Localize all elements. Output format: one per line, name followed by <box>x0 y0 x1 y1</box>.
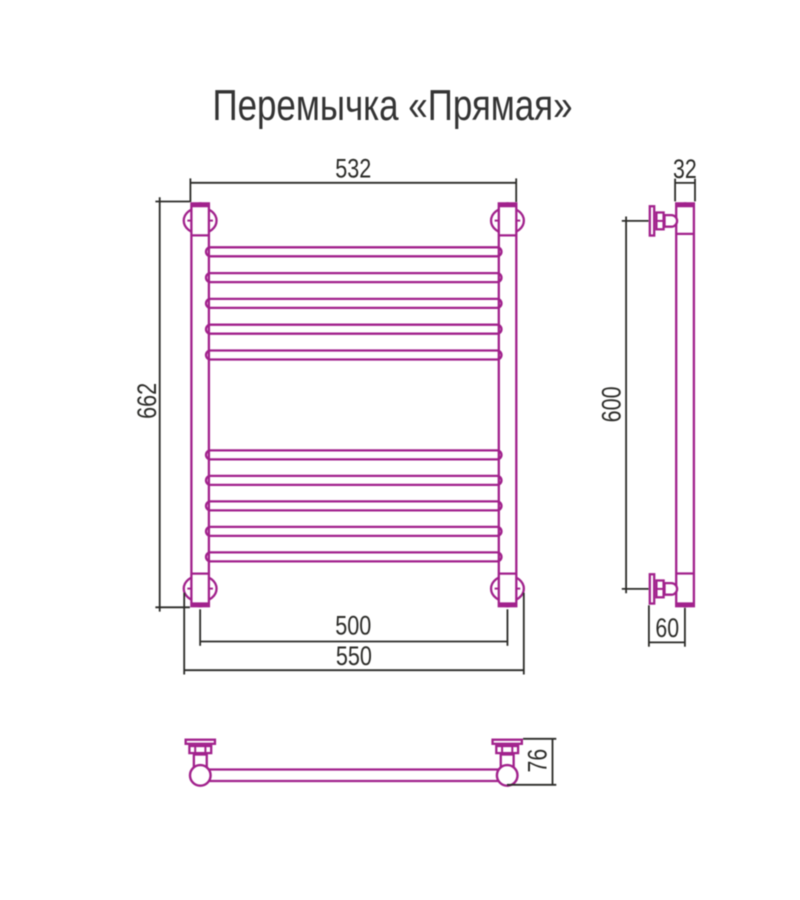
svg-text:550: 550 <box>336 641 372 671</box>
svg-text:60: 60 <box>655 613 679 643</box>
svg-text:662: 662 <box>132 383 162 419</box>
svg-text:532: 532 <box>335 154 371 184</box>
svg-text:32: 32 <box>673 154 697 184</box>
svg-text:Перемычка «Прямая»: Перемычка «Прямая» <box>213 82 573 130</box>
svg-text:76: 76 <box>522 749 552 773</box>
svg-text:500: 500 <box>335 610 371 640</box>
svg-text:600: 600 <box>597 386 627 422</box>
